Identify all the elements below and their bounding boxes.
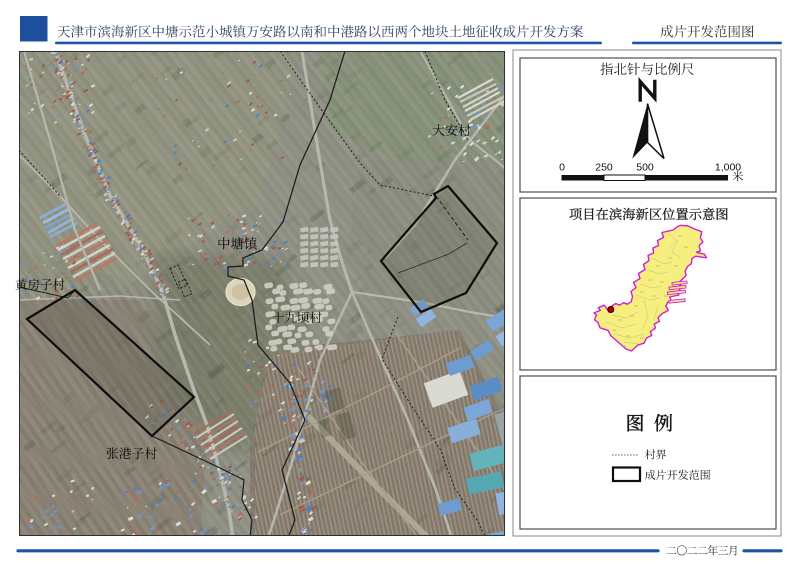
svg-text:500: 500 bbox=[636, 162, 654, 174]
svg-text:0: 0 bbox=[559, 162, 565, 174]
svg-text:250: 250 bbox=[595, 162, 613, 174]
